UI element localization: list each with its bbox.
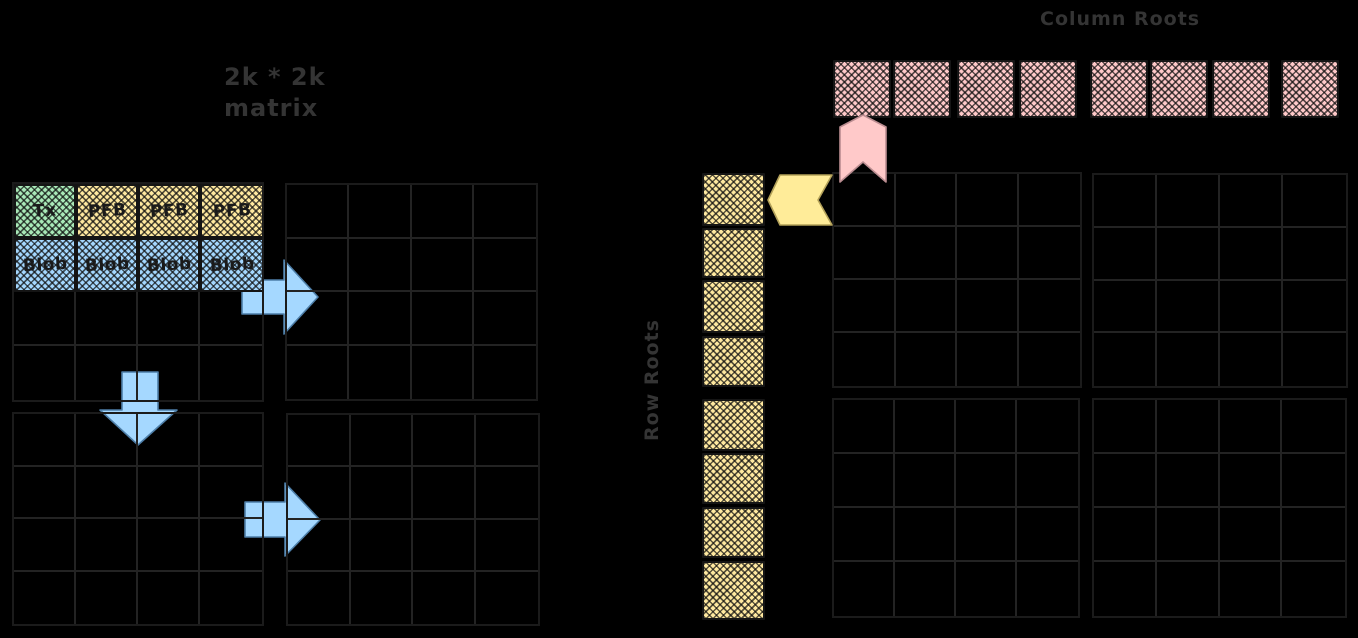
matrix-cell [1220, 400, 1283, 454]
matrix-cell [1017, 400, 1078, 454]
matrix-cell [1220, 333, 1283, 386]
matrix-cell [14, 572, 76, 625]
matrix-cell [1094, 454, 1157, 508]
row-root-cell [702, 228, 765, 278]
matrix-cell-label: PFB [87, 200, 127, 222]
matrix-cell-blob: Blob [138, 238, 200, 292]
matrix-cell [1017, 562, 1078, 616]
matrix-cell [413, 572, 476, 624]
left-grid-bottom-left [12, 412, 264, 626]
matrix-cell-tx: Tx [14, 184, 76, 238]
matrix-cell [956, 562, 1017, 616]
matrix-cell [287, 239, 349, 293]
row-root-cell [702, 173, 765, 226]
row-root-cell [702, 453, 765, 504]
matrix-cell [1283, 175, 1346, 228]
matrix-cell [1094, 333, 1157, 386]
matrix-cell [474, 185, 536, 239]
matrix-cell [1094, 562, 1157, 616]
right-grid-top-left [832, 172, 1082, 388]
matrix-cell [349, 239, 411, 293]
matrix-cell-label: PFB [212, 200, 252, 222]
matrix-cell [413, 467, 476, 519]
matrix-cell [76, 292, 138, 346]
matrix-cell [1094, 281, 1157, 334]
matrix-cell [1220, 562, 1283, 616]
matrix-cell [288, 467, 351, 519]
matrix-cell [412, 185, 474, 239]
matrix-cell [76, 467, 138, 520]
matrix-size-label-line1: 2k * 2k [224, 62, 326, 93]
row-root-cell [702, 399, 765, 451]
matrix-cell [351, 520, 414, 572]
matrix-cell [1094, 228, 1157, 281]
matrix-cell [14, 519, 76, 572]
matrix-cell [1157, 454, 1220, 508]
matrix-cell [957, 174, 1019, 227]
matrix-cell [896, 280, 958, 333]
matrix-cell [896, 227, 958, 280]
matrix-cell [1282, 508, 1345, 562]
matrix-cell [1157, 562, 1220, 616]
matrix-cell [1220, 508, 1283, 562]
matrix-cell [76, 572, 138, 625]
matrix-cell [1157, 281, 1220, 334]
matrix-cell [1094, 400, 1157, 454]
matrix-cell [895, 508, 956, 562]
matrix-cell [1019, 333, 1081, 386]
matrix-cell [14, 467, 76, 520]
matrix-cell [200, 292, 262, 346]
matrix-cell-pfb: PFB [76, 184, 138, 238]
matrix-cell [200, 519, 262, 572]
column-roots-label: Column Roots [1040, 8, 1200, 30]
matrix-cell [1283, 281, 1346, 334]
matrix-cell [834, 562, 895, 616]
matrix-cell [1220, 228, 1283, 281]
matrix-cell-blob: Blob [14, 238, 76, 292]
column-root-cell [957, 60, 1015, 118]
matrix-cell-label: Blob [22, 254, 68, 276]
matrix-cell [1157, 228, 1220, 281]
matrix-cell [287, 292, 349, 346]
matrix-cell [1283, 228, 1346, 281]
column-root-cell [893, 60, 951, 118]
matrix-cell [834, 280, 896, 333]
matrix-cell [1157, 400, 1220, 454]
matrix-cell [349, 185, 411, 239]
left-grid-bottom-right [286, 413, 540, 626]
matrix-cell [413, 520, 476, 572]
matrix-cell [138, 572, 200, 625]
matrix-cell [76, 414, 138, 467]
matrix-cell [895, 454, 956, 508]
matrix-cell [1220, 454, 1283, 508]
matrix-cell [200, 414, 262, 467]
row-root-cell [702, 280, 765, 333]
matrix-cell-label: Blob [146, 254, 192, 276]
matrix-cell [76, 519, 138, 572]
matrix-cell [138, 519, 200, 572]
matrix-cell [138, 292, 200, 346]
matrix-cell-blob: Blob [200, 238, 262, 292]
matrix-cell [956, 400, 1017, 454]
matrix-cell [1283, 333, 1346, 386]
matrix-size-label-line2: matrix [224, 93, 326, 124]
matrix-cell [474, 239, 536, 293]
matrix-cell [956, 454, 1017, 508]
diagram-canvas: 2k * 2k matrix Column Roots Row Roots Tx… [0, 0, 1358, 638]
row-root-pointer-arrow [768, 175, 832, 225]
matrix-cell [288, 520, 351, 572]
matrix-cell [138, 414, 200, 467]
matrix-cell [834, 508, 895, 562]
column-root-pointer-arrow-shape [840, 115, 886, 182]
matrix-cell-blob: Blob [76, 238, 138, 292]
matrix-cell [1157, 175, 1220, 228]
matrix-cell [834, 454, 895, 508]
column-root-cell [833, 60, 891, 118]
matrix-cell [476, 415, 539, 467]
matrix-cell [896, 333, 958, 386]
matrix-cell [834, 227, 896, 280]
matrix-cell [138, 346, 200, 400]
matrix-cell-pfb: PFB [200, 184, 262, 238]
matrix-cell [288, 415, 351, 467]
matrix-cell [349, 346, 411, 400]
matrix-cell [1019, 174, 1081, 227]
matrix-cell [895, 562, 956, 616]
row-root-pointer-arrow-shape [768, 175, 832, 225]
matrix-cell [957, 280, 1019, 333]
matrix-cell [200, 467, 262, 520]
matrix-cell [349, 292, 411, 346]
matrix-cell [474, 346, 536, 400]
column-root-cell [1150, 60, 1208, 118]
matrix-cell-label: Blob [84, 254, 130, 276]
matrix-cell-label: PFB [149, 200, 189, 222]
matrix-cell [834, 333, 896, 386]
matrix-size-label: 2k * 2k matrix [224, 62, 326, 124]
right-grid-bottom-right [1092, 398, 1347, 618]
column-root-cell [1281, 60, 1339, 118]
matrix-cell [476, 572, 539, 624]
matrix-cell [14, 346, 76, 400]
row-root-cell [702, 336, 765, 387]
matrix-cell [957, 227, 1019, 280]
matrix-cell [412, 239, 474, 293]
matrix-cell [476, 467, 539, 519]
matrix-cell [1017, 508, 1078, 562]
matrix-cell [1094, 508, 1157, 562]
matrix-cell [1017, 454, 1078, 508]
matrix-cell [288, 572, 351, 624]
matrix-cell-label: Tx [33, 200, 58, 221]
matrix-cell [476, 520, 539, 572]
matrix-cell [957, 333, 1019, 386]
matrix-cell [14, 414, 76, 467]
matrix-cell-pfb: PFB [138, 184, 200, 238]
matrix-cell [1220, 281, 1283, 334]
matrix-cell [1019, 227, 1081, 280]
matrix-cell [412, 346, 474, 400]
matrix-cell [1094, 175, 1157, 228]
matrix-cell [413, 415, 476, 467]
matrix-cell [956, 508, 1017, 562]
row-root-cell [702, 507, 765, 558]
matrix-cell [1282, 454, 1345, 508]
matrix-cell [896, 174, 958, 227]
matrix-cell [1157, 333, 1220, 386]
matrix-cell [76, 346, 138, 400]
matrix-cell [1157, 508, 1220, 562]
matrix-cell [351, 572, 414, 624]
matrix-cell [895, 400, 956, 454]
matrix-cell [1019, 280, 1081, 333]
matrix-cell [351, 467, 414, 519]
matrix-cell [1282, 562, 1345, 616]
matrix-cell [1282, 400, 1345, 454]
matrix-cell-label: Blob [209, 254, 255, 276]
column-root-cell [1090, 60, 1148, 118]
right-grid-top-right [1092, 173, 1348, 388]
matrix-cell [200, 346, 262, 400]
matrix-cell [1220, 175, 1283, 228]
matrix-cell [287, 185, 349, 239]
left-grid-top-right [285, 183, 538, 401]
matrix-cell [138, 467, 200, 520]
right-grid-bottom-left [832, 398, 1080, 618]
matrix-cell [412, 292, 474, 346]
column-root-pointer-arrow [840, 115, 886, 182]
matrix-cell [200, 572, 262, 625]
matrix-cell [14, 292, 76, 346]
matrix-cell [287, 346, 349, 400]
left-grid-top-left: TxPFBPFBPFBBlobBlobBlobBlob [12, 182, 264, 402]
matrix-cell [351, 415, 414, 467]
column-root-cell [1212, 60, 1270, 118]
row-roots-label: Row Roots [641, 319, 663, 441]
matrix-cell [834, 400, 895, 454]
matrix-cell [474, 292, 536, 346]
column-root-cell [1019, 60, 1077, 118]
row-root-cell [702, 561, 765, 620]
